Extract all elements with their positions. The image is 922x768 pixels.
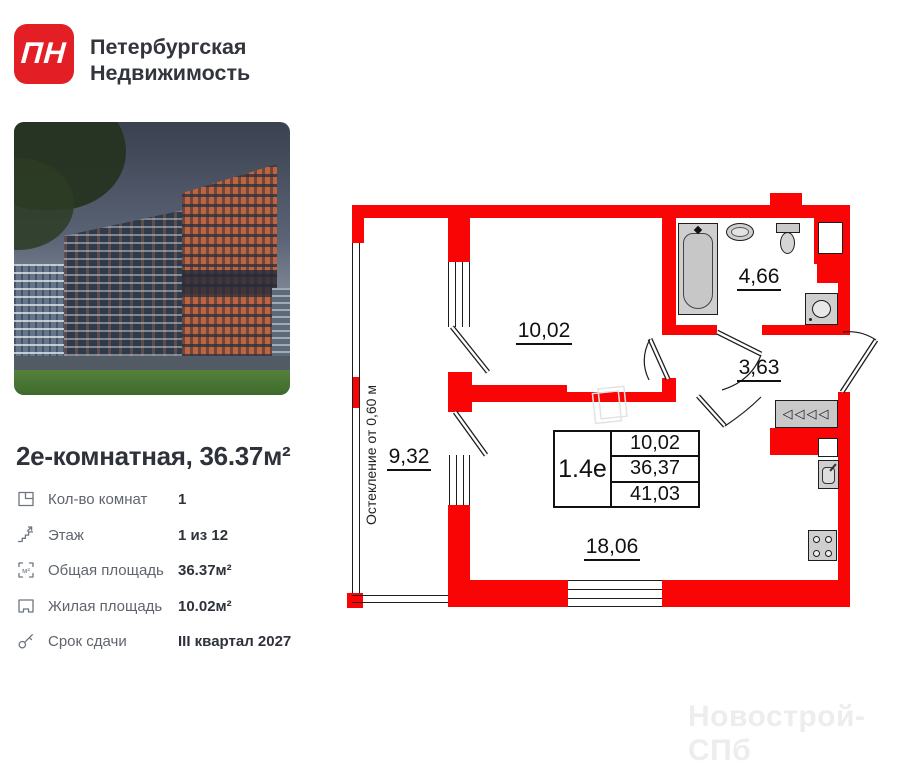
area-icon: м² <box>16 560 36 580</box>
room-area-label: 9,32 <box>374 445 444 469</box>
unit-living-area: 10,02 <box>612 432 698 455</box>
plan-watermark-cube <box>592 386 627 423</box>
brand-name-line2: Недвижимость <box>90 60 250 86</box>
svg-text:м²: м² <box>22 566 30 575</box>
page-title: 2е-комнатная, 36.37м² <box>16 441 290 472</box>
far-building <box>272 288 290 360</box>
unit-info-table: 1.4е 10,02 36,37 41,03 <box>553 430 700 508</box>
floor-plan: ◁◁◁◁ 10,02 4,66 3,63 9,32 18, <box>352 193 892 613</box>
main-building-orange-face <box>182 164 277 372</box>
building-dark-band <box>182 270 277 294</box>
detail-value: 1 <box>178 491 186 508</box>
detail-label: Жилая площадь <box>48 598 162 615</box>
floorplan-icon <box>16 489 36 509</box>
room-area-label: 18,06 <box>570 535 654 559</box>
details-list: Кол-во комнат 1 Этаж 1 из 12 м² Общая пл… <box>16 490 296 668</box>
detail-value: 10.02м² <box>178 598 232 615</box>
detail-label: Общая площадь <box>48 562 164 579</box>
detail-label: Кол-во комнат <box>48 491 147 508</box>
detail-row-total-area: м² Общая площадь 36.37м² <box>16 561 296 581</box>
brand-name: Петербургская Недвижимость <box>90 34 250 86</box>
site-watermark: Новострой-СПб <box>688 700 920 768</box>
lawn <box>14 370 290 395</box>
glazing-note: Остекление от 0,60 м <box>363 345 381 565</box>
detail-value: III квартал 2027 <box>178 633 291 650</box>
detail-row-deadline: Срок сдачи III квартал 2027 <box>16 632 296 652</box>
detail-label: Этаж <box>48 527 84 544</box>
detail-label: Срок сдачи <box>48 633 127 650</box>
detail-row-living-area: Жилая площадь 10.02м² <box>16 597 296 617</box>
key-icon <box>16 631 36 651</box>
brand-name-line1: Петербургская <box>90 34 250 60</box>
building-photo[interactable] <box>14 122 290 395</box>
main-building-dark-face <box>64 210 184 372</box>
unit-type-label: 1.4е <box>555 432 612 506</box>
room-area-label: 4,66 <box>726 265 792 289</box>
detail-value: 1 из 12 <box>178 527 228 544</box>
unit-full-area: 41,03 <box>612 481 698 506</box>
room-area-label: 3,63 <box>726 356 792 380</box>
unit-total-area: 36,37 <box>612 455 698 480</box>
detail-row-rooms: Кол-во комнат 1 <box>16 490 296 510</box>
stairs-icon <box>16 525 36 545</box>
detail-row-floor: Этаж 1 из 12 <box>16 526 296 546</box>
detail-value: 36.37м² <box>178 562 232 579</box>
brand-logo[interactable]: ПН <box>14 24 74 84</box>
brand-logo-letters: ПН <box>20 37 68 71</box>
room-area-label: 10,02 <box>502 319 586 343</box>
living-area-icon <box>16 596 36 616</box>
